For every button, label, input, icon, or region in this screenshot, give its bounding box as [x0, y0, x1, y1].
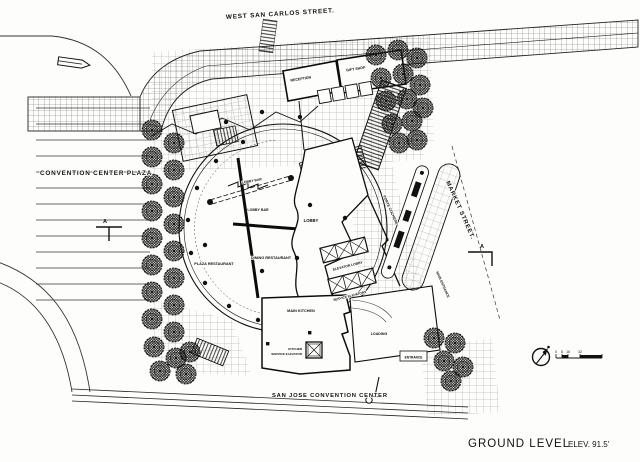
room-label-loading: LOADING: [371, 332, 388, 336]
section-label-a-left: A: [103, 219, 107, 225]
curb-bottom-left-2: [0, 262, 90, 392]
tree-icon: [407, 130, 427, 150]
tree-icon: [176, 364, 196, 384]
traffic-island-icon: [58, 57, 91, 69]
tree-icon: [142, 255, 162, 275]
sidewalk-left: [28, 97, 140, 131]
tree-icon: [434, 351, 454, 371]
scale-bar: 0 8 16 32: [555, 350, 602, 358]
plaza-bands: [36, 108, 150, 300]
room-label-kitchen-service-1: KITCHEN: [288, 347, 303, 351]
tree-icon: [424, 328, 444, 348]
tree-icon: [142, 282, 162, 302]
tree-icon: [142, 201, 162, 221]
tree-icon: [164, 160, 184, 180]
tree-icon: [144, 337, 164, 357]
tree-icon: [164, 295, 184, 315]
room-main-kitchen: [262, 295, 350, 374]
tree-icon: [366, 45, 386, 65]
room-label-lobby-bar-upper: LOBBY BAR: [242, 177, 263, 185]
room-label-main-entrance: MAIN ENTRANCE: [435, 271, 451, 299]
street-label-market: MARKET STREET.: [444, 180, 475, 240]
tree-icon: [142, 228, 162, 248]
tree-icon: [164, 268, 184, 288]
tree-icon: [382, 114, 402, 134]
tree-icon: [441, 371, 461, 391]
tree-icon: [142, 147, 162, 167]
tree-icon: [142, 309, 162, 329]
section-marker-left: A: [96, 219, 122, 241]
tree-icon: [164, 322, 184, 342]
tree-icon: [407, 48, 427, 68]
tree-icon: [164, 241, 184, 261]
tree-icon: [142, 120, 162, 140]
tree-icon: [371, 68, 391, 88]
tree-icon: [445, 333, 465, 353]
room-label-plaza-restaurant: PLAZA RESTAURANT: [194, 262, 234, 266]
section-label-a-right: A: [480, 244, 484, 250]
tree-icon: [164, 133, 184, 153]
keynote-flag: [366, 377, 382, 403]
curb-bottom-left-1: [0, 282, 72, 392]
plan-drawing: A A 0 8 16 32 WEST SAN CARLOS STREET. CO…: [0, 0, 640, 462]
tree-icon: [164, 187, 184, 207]
tree-icon: [402, 111, 422, 131]
sheet-title: GROUND LEVEL: [468, 438, 570, 450]
service-elevator-icon: [306, 342, 322, 358]
tree-icon: [142, 174, 162, 194]
tree-icon: [164, 214, 184, 234]
scale-tick-32: 32: [578, 350, 582, 354]
north-arrow-icon: [533, 346, 550, 366]
sheet-elevation: ELEV. 91.5': [568, 440, 610, 449]
section-marker-right: A: [468, 244, 492, 266]
street-label-convention-center-plaza: CONVENTION CENTER PLAZA: [40, 170, 152, 177]
tree-icon: [393, 64, 413, 84]
tree-icon: [388, 40, 408, 60]
room-label-main-kitchen: MAIN KITCHEN: [287, 309, 315, 313]
scale-tick-8: 8: [561, 350, 563, 354]
room-label-lobby-bar-lower: LOBBY BAR: [247, 208, 269, 212]
building-label-convention-center: SAN JOSE CONVENTION CENTER: [272, 393, 388, 399]
site-plan-sheet: A A 0 8 16 32 WEST SAN CARLOS STREET. CO…: [0, 0, 640, 462]
room-label-kitchen-service-2: SERVICE ELEVATOR: [271, 352, 302, 356]
scale-tick-0: 0: [555, 350, 557, 354]
room-label-lobby: LOBBY: [304, 218, 319, 223]
tree-icon: [389, 133, 409, 153]
room-label-dining-restaurant: DINING RESTAURANT: [251, 256, 292, 260]
room-label-entrance: ENTRANCE: [405, 356, 423, 360]
tree-icon: [376, 91, 396, 111]
sidewalk-bottom: [72, 389, 468, 419]
scale-tick-16: 16: [566, 350, 570, 354]
street-label-west-san-carlos: WEST SAN CARLOS STREET.: [226, 7, 335, 21]
tree-icon: [150, 361, 170, 381]
title-block: GROUND LEVEL ELEV. 91.5': [468, 438, 610, 450]
